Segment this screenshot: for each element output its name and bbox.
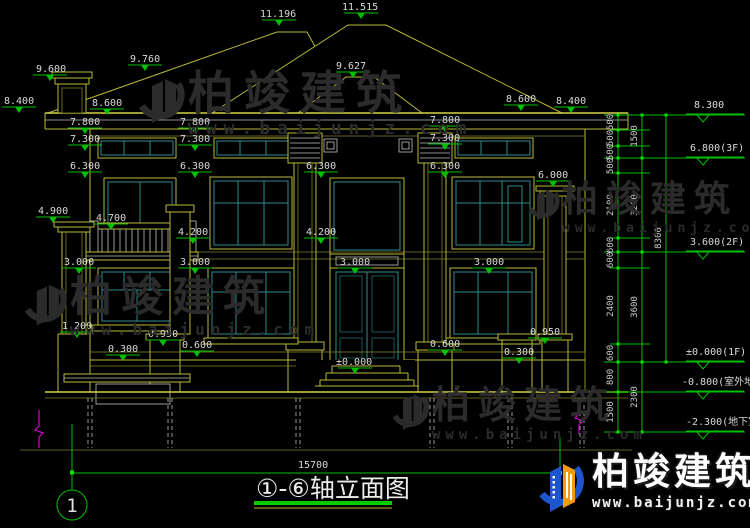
pilaster-far-right bbox=[536, 186, 574, 392]
level-label: 3.600(2F) bbox=[690, 237, 744, 248]
elev-mark: 3.000 bbox=[340, 257, 370, 268]
elev-mark: 8.400 bbox=[4, 96, 34, 107]
elev-mark: 4.900 bbox=[38, 206, 68, 217]
title-underline bbox=[254, 501, 392, 505]
right-level-marks: 8.300 6.800(3F) 3.600(2F) ±0.000(1F) -0.… bbox=[682, 100, 750, 439]
elev-mark: 8.600 bbox=[92, 98, 122, 109]
elev-mark: 7.800 bbox=[180, 117, 210, 128]
elev-mark: 7.800 bbox=[70, 117, 100, 128]
dim-text: 500 bbox=[606, 144, 616, 160]
level-label: -0.800(室外地面) bbox=[682, 375, 750, 388]
brand-logo-icon bbox=[536, 452, 586, 522]
level-label: 6.800(3F) bbox=[690, 143, 744, 154]
dim-text: 600 bbox=[606, 252, 616, 268]
dim-text: 600 bbox=[606, 237, 616, 253]
level-label: -2.300(地下室) bbox=[686, 415, 750, 428]
elev-mark: 0.950 bbox=[148, 329, 178, 340]
window-2f-center-left bbox=[210, 177, 292, 249]
level-symbol bbox=[2, 107, 36, 113]
dim-text: 800 bbox=[606, 369, 616, 385]
axis-bubble-1: 1 bbox=[57, 490, 87, 520]
dentil-ornaments bbox=[324, 139, 412, 152]
elev-mark: 8.600 bbox=[506, 94, 536, 105]
elev-mark: 9.627 bbox=[336, 61, 366, 72]
brand-logo-site: www.baijunjz.com bbox=[592, 495, 750, 511]
elev-mark: 7.800 bbox=[430, 115, 460, 126]
elev-mark: 3.000 bbox=[64, 257, 94, 268]
section-break-marks bbox=[35, 400, 583, 448]
elev-mark: 0.600 bbox=[182, 340, 212, 351]
elev-mark: 0.300 bbox=[108, 344, 138, 355]
elev-mark: ±0.000 bbox=[336, 357, 372, 368]
pilaster-far-left bbox=[54, 222, 94, 392]
dim-text: 500 bbox=[606, 130, 616, 146]
dimension-chain: 500 500 500 500 2100 600 600 2400 600 80… bbox=[604, 100, 750, 439]
elev-mark: 0.600 bbox=[430, 339, 460, 350]
level-symbol bbox=[178, 172, 212, 178]
brand-logo: 柏竣建筑 www.baijunjz.com bbox=[536, 452, 750, 522]
elev-mark: 4.200 bbox=[306, 227, 336, 238]
fascia-band bbox=[45, 113, 628, 129]
elev-mark: 9.760 bbox=[130, 54, 160, 65]
dim-text: 3200 bbox=[630, 194, 640, 216]
elev-mark: 8.400 bbox=[556, 96, 586, 107]
elev-mark: 7.300 bbox=[70, 134, 100, 145]
axis-number: 1 bbox=[66, 495, 77, 517]
lattice-screen bbox=[330, 178, 404, 254]
window-3f-left bbox=[98, 138, 176, 158]
elev-mark: 3.000 bbox=[474, 257, 504, 268]
elev-mark: 9.600 bbox=[36, 64, 66, 75]
drawing-title: ①-⑥轴立面图 bbox=[256, 474, 410, 503]
elev-mark: 0.950 bbox=[530, 327, 560, 338]
window-3f-right bbox=[455, 138, 533, 158]
level-symbol bbox=[304, 238, 338, 244]
level-label: ±0.000(1F) bbox=[686, 347, 746, 358]
foundation-dashed bbox=[88, 398, 584, 448]
level-symbol bbox=[128, 65, 162, 71]
elev-mark: 4.700 bbox=[96, 213, 126, 224]
level-symbol bbox=[68, 145, 102, 151]
dim-text: 500 bbox=[606, 158, 616, 174]
level-symbol bbox=[502, 358, 536, 364]
level-symbol bbox=[178, 145, 212, 151]
window-3f-center bbox=[214, 138, 292, 158]
elev-mark: 0.300 bbox=[504, 347, 534, 358]
level-symbol bbox=[262, 20, 296, 26]
elev-mark: 6.300 bbox=[70, 161, 100, 172]
dim-text: 3600 bbox=[630, 296, 640, 318]
elev-mark: 11.196 bbox=[260, 9, 296, 20]
elev-mark: 1.200 bbox=[62, 321, 92, 332]
dim-text: 1500 bbox=[606, 401, 616, 423]
elev-mark: 11.515 bbox=[342, 2, 378, 13]
brand-logo-text: 柏竣建筑 bbox=[592, 452, 750, 493]
level-symbol bbox=[344, 13, 378, 19]
dim-text: 500 bbox=[606, 114, 616, 130]
window-1f-center-right bbox=[446, 268, 540, 344]
dim-text: 2400 bbox=[606, 295, 616, 317]
dim-text: 2300 bbox=[630, 386, 640, 408]
level-symbol bbox=[428, 350, 462, 356]
level-symbol bbox=[146, 340, 180, 346]
elev-mark: 6.300 bbox=[180, 161, 210, 172]
elev-mark: 4.200 bbox=[178, 227, 208, 238]
level-symbol bbox=[68, 172, 102, 178]
elev-mark: 7.300 bbox=[180, 134, 210, 145]
dim-text: 600 bbox=[606, 345, 616, 361]
elevation-drawing: 9.600 8.400 8.600 9.760 11.196 11.515 9.… bbox=[0, 0, 750, 528]
elev-mark: 6.300 bbox=[306, 161, 336, 172]
window-1f-center-left bbox=[204, 268, 298, 344]
elev-mark: 6.000 bbox=[538, 170, 568, 181]
level-symbol bbox=[304, 172, 338, 178]
dim-text: 2100 bbox=[606, 194, 616, 216]
entrance-door bbox=[330, 268, 404, 366]
elev-mark: 6.300 bbox=[430, 161, 460, 172]
title-block: ①-⑥轴立面图 bbox=[254, 474, 410, 508]
level-label: 8.300 bbox=[694, 100, 724, 111]
level-symbol bbox=[472, 268, 506, 274]
overall-width-dim: 15700 bbox=[298, 460, 328, 471]
basement-grille bbox=[64, 374, 190, 404]
dim-text: 1500 bbox=[630, 125, 640, 147]
elev-mark: 7.300 bbox=[430, 133, 460, 144]
window-1f-left bbox=[92, 268, 182, 331]
level-symbol bbox=[90, 109, 124, 115]
cad-elevation-screenshot: 9.600 8.400 8.600 9.760 11.196 11.515 9.… bbox=[0, 0, 750, 528]
window-2f-center-right bbox=[452, 177, 534, 249]
chimney bbox=[52, 72, 92, 113]
dim-text: 8300 bbox=[654, 227, 664, 249]
elev-mark: 3.000 bbox=[180, 257, 210, 268]
